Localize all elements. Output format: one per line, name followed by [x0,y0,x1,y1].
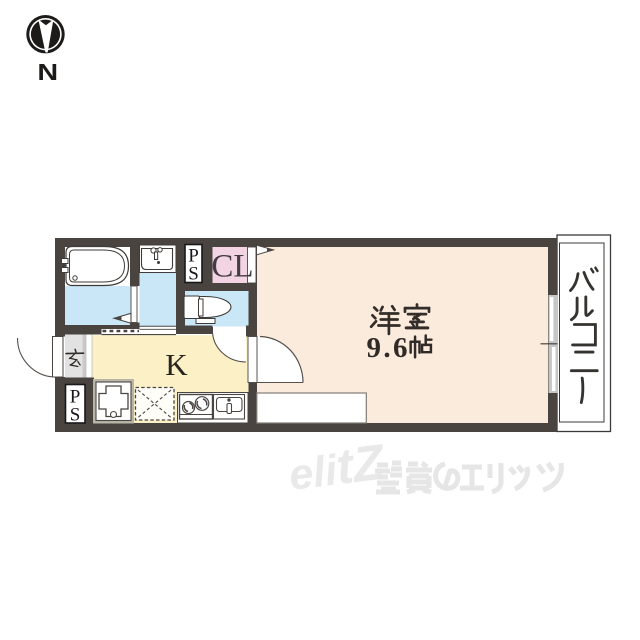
svg-text:K: K [165,347,188,382]
svg-text:N: N [37,59,58,86]
svg-text:CL: CL [211,249,253,285]
svg-text:9.6: 9.6 [367,332,408,364]
svg-text:S: S [188,264,199,285]
svg-text:S: S [70,405,81,426]
